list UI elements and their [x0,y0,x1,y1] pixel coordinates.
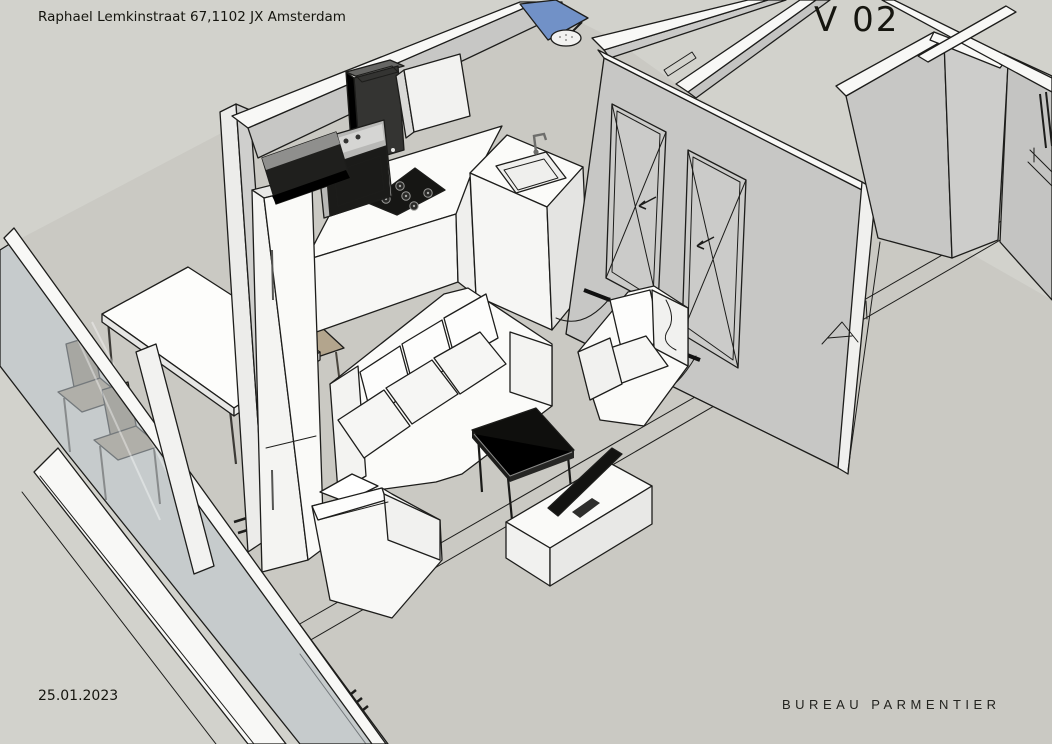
faucet-base [533,149,538,154]
floorplan-render: Raphael Lemkinstraat 67,1102 JX Amsterda… [0,0,1052,744]
door-2 [682,150,746,368]
version-label: V 02 [814,0,899,40]
date-label: 25.01.2023 [38,688,118,704]
room-wall [1000,62,1052,300]
door-1 [606,104,666,306]
column-cap [391,148,395,152]
shower-head [551,30,581,46]
scene-drawing [0,0,1052,744]
corridor-doorframe [664,52,696,76]
address-label: Raphael Lemkinstraat 67,1102 JX Amsterda… [38,9,346,25]
room-wall [944,40,1008,258]
studio-label: BUREAU PARMENTIER [782,697,1001,712]
